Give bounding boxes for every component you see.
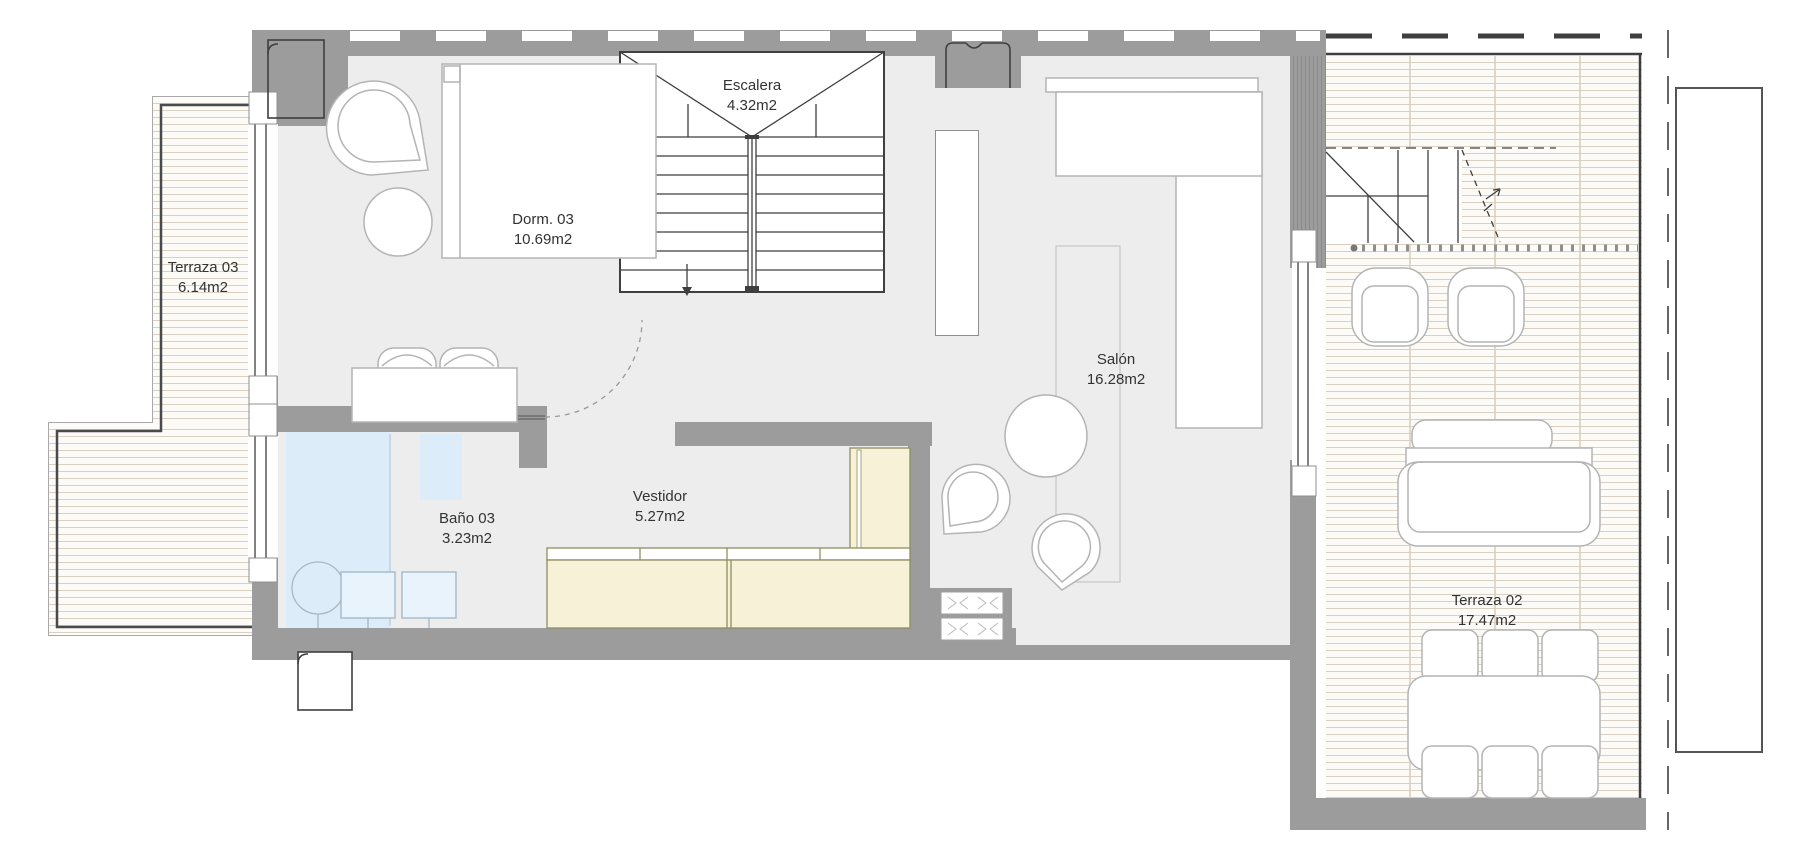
room-name: Baño 03 (439, 509, 495, 529)
window-dorm-west (248, 92, 278, 404)
room-label-bano-03: Baño 03 3.23m2 (439, 509, 495, 549)
room-label-escalera: Escalera 4.32m2 (723, 76, 781, 116)
window-bath-west (248, 404, 278, 582)
room-name: Salón (1087, 350, 1145, 370)
plan-linework (0, 0, 1793, 861)
room-label-vestidor: Vestidor 5.27m2 (633, 487, 687, 527)
terraza-02-furniture (1352, 268, 1600, 798)
exterior-stair (1326, 148, 1638, 252)
room-label-salon: Salón 16.28m2 (1087, 350, 1145, 390)
window-salon-east (1292, 230, 1316, 496)
room-area: 3.23m2 (439, 529, 495, 549)
room-area: 17.47m2 (1452, 611, 1523, 631)
room-name: Vestidor (633, 487, 687, 507)
room-area: 16.28m2 (1087, 370, 1145, 390)
closet-symbol-bottom-left (298, 652, 352, 710)
salon-furniture (942, 78, 1262, 590)
terraza-03-rail (57, 105, 252, 627)
room-area: 10.69m2 (512, 230, 574, 250)
room-area: 4.32m2 (723, 96, 781, 116)
neighbour-outline (1676, 88, 1762, 752)
bedroom-furniture (327, 64, 656, 422)
floor-plan: Terraza 03 6.14m2 Dorm. 03 10.69m2 Escal… (0, 0, 1793, 861)
room-name: Terraza 03 (168, 258, 239, 278)
room-name: Dorm. 03 (512, 210, 574, 230)
room-name: Terraza 02 (1452, 591, 1523, 611)
room-label-terraza-02: Terraza 02 17.47m2 (1452, 591, 1523, 631)
entry-door (946, 43, 1010, 88)
room-label-dorm-03: Dorm. 03 10.69m2 (512, 210, 574, 250)
room-area: 6.14m2 (168, 278, 239, 298)
niche-radiators (941, 592, 1003, 640)
bath-fixtures (292, 434, 456, 628)
vestidor-wardrobes (547, 448, 910, 628)
room-name: Escalera (723, 76, 781, 96)
room-label-terraza-03: Terraza 03 6.14m2 (168, 258, 239, 298)
terraza-03-boundary (49, 97, 253, 636)
room-area: 5.27m2 (633, 507, 687, 527)
